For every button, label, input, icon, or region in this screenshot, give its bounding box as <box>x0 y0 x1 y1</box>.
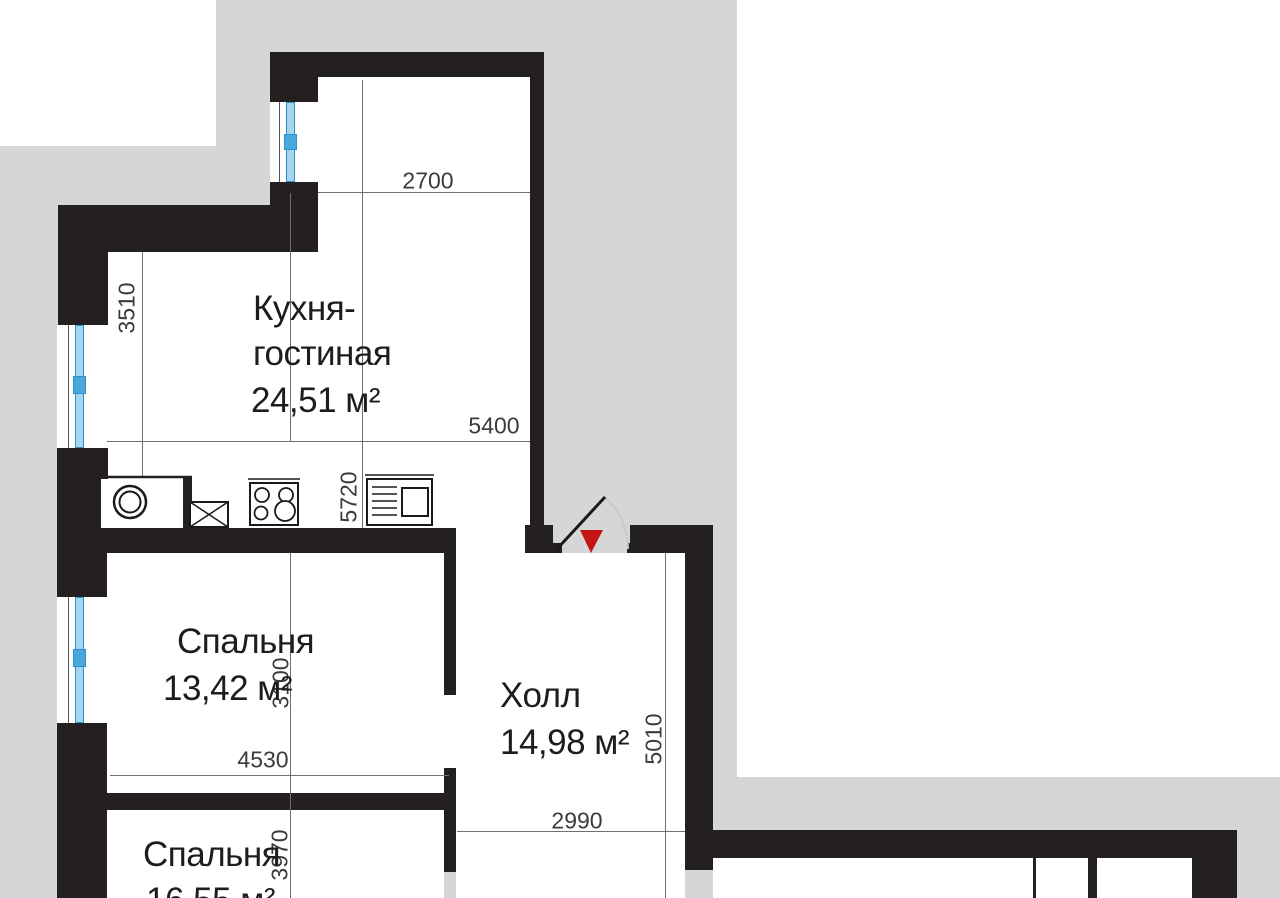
floor-plan: 2700 5400 4530 2990 3510 5720 3100 5010 … <box>0 0 1280 898</box>
plan-symbols-layer <box>0 0 1280 898</box>
stove-icon <box>248 479 300 525</box>
washing-machine-icon <box>114 486 146 518</box>
entrance-marker-icon <box>580 530 603 553</box>
sink-icon <box>190 502 228 527</box>
refrigerator-icon <box>365 475 434 525</box>
